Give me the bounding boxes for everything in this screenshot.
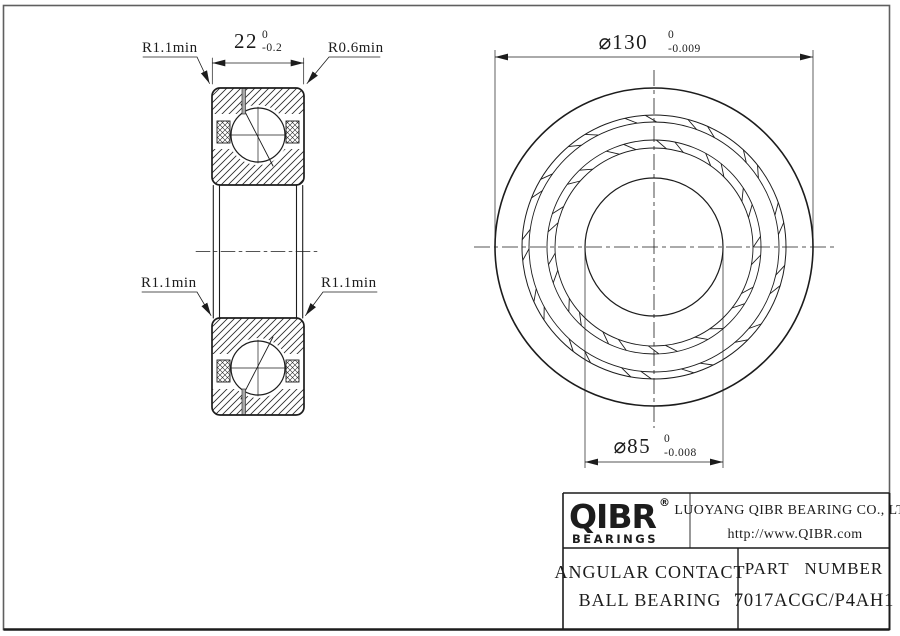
- brand-logo: QIBR ® BEARINGS: [569, 496, 670, 546]
- ring-groove: [242, 88, 246, 114]
- width-dim-value: 22: [234, 29, 258, 53]
- bore-dim-text: ⌀85: [613, 434, 651, 458]
- company-website: http://www.QIBR.com: [727, 527, 862, 542]
- bore-dim-tol-upper: 0: [664, 433, 670, 445]
- cage-section-left: [217, 360, 230, 382]
- bore-dim-tol-lower: -0.008: [664, 447, 697, 459]
- brand-subtitle: BEARINGS: [572, 532, 658, 546]
- brand-name: QIBR: [569, 497, 656, 536]
- od-dim-tol-upper: 0: [668, 29, 674, 41]
- cage-section-right: [286, 121, 299, 143]
- label-radius-top-left: R1.1min: [142, 40, 198, 56]
- part-number-label: PART NUMBER: [745, 559, 884, 578]
- registered-mark: ®: [659, 496, 670, 509]
- od-dim-text: ⌀130: [598, 30, 648, 54]
- label-radius-mid-left: R1.1min: [141, 275, 197, 291]
- label-radius-top-right: R0.6min: [328, 40, 384, 56]
- width-dim-tol-upper: 0: [262, 29, 268, 41]
- part-number: 7017ACGC/P4AH1: [734, 591, 894, 611]
- title-block: QIBR ® BEARINGS LUOYANG QIBR BEARING CO.…: [554, 493, 900, 630]
- section-top-half: [212, 88, 304, 185]
- ring-groove: [242, 389, 246, 415]
- front-view: ⌀130 0 -0.009 ⌀85 0 -0.008: [474, 29, 836, 468]
- product-name-line1: ANGULAR CONTACT: [554, 562, 745, 582]
- label-radius-mid-right: R1.1min: [321, 275, 377, 291]
- company-name: LUOYANG QIBR BEARING CO., LTD: [674, 503, 900, 518]
- section-bottom-half: [212, 318, 304, 415]
- product-name-line2: BALL BEARING: [579, 590, 722, 610]
- od-dim-tol-lower: -0.009: [668, 43, 701, 55]
- cage-section-left: [217, 121, 230, 143]
- drawing-sheet: 22 0 -0.2 R1.1min R0.6min R1.1min R1.1mi…: [0, 0, 900, 636]
- cage-section-right: [286, 360, 299, 382]
- bearing-drawing: 22 0 -0.2 R1.1min R0.6min R1.1min R1.1mi…: [0, 0, 900, 636]
- width-dim-tol-lower: -0.2: [262, 42, 282, 54]
- dimension-width: 22 0 -0.2: [212, 29, 303, 84]
- section-view: 22 0 -0.2 R1.1min R0.6min R1.1min R1.1mi…: [141, 29, 384, 415]
